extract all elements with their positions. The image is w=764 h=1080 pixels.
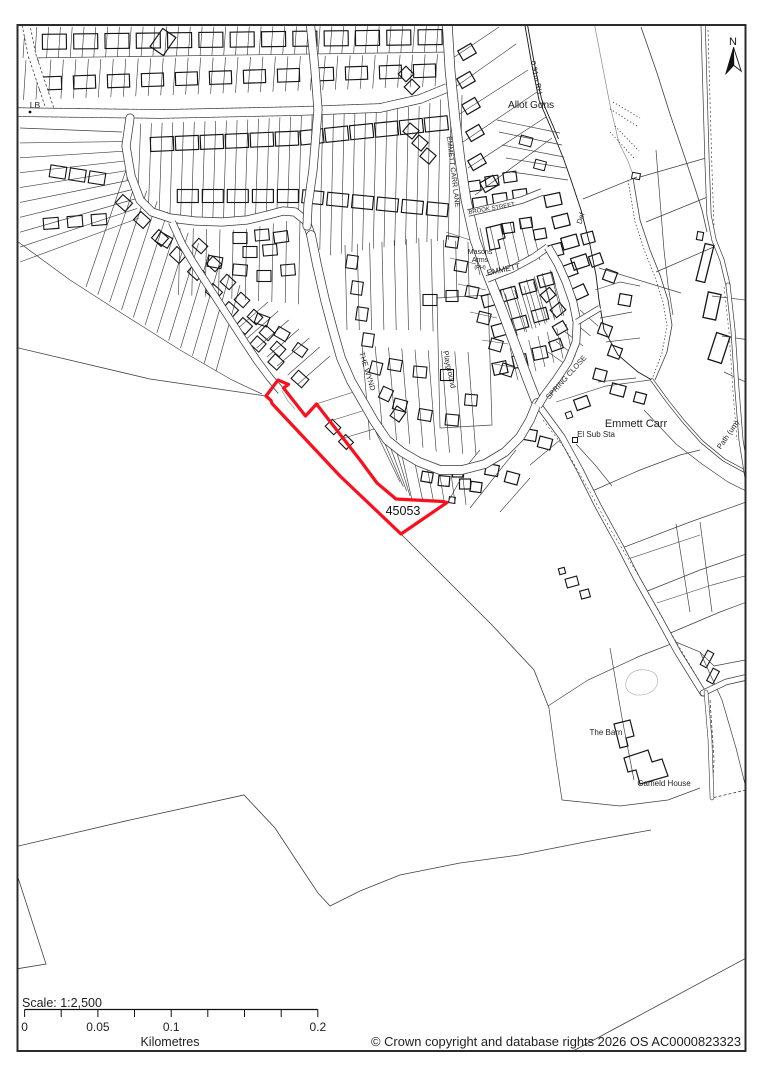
svg-text:Garfield House: Garfield House: [637, 779, 691, 788]
svg-text:Allot Gdns: Allot Gdns: [508, 100, 554, 111]
svg-text:Arms: Arms: [472, 257, 489, 264]
svg-text:Kilometres: Kilometres: [140, 1035, 199, 1049]
svg-text:N: N: [729, 36, 737, 48]
svg-text:0.2: 0.2: [309, 1020, 326, 1034]
svg-text:0.1: 0.1: [163, 1020, 180, 1034]
svg-text:Emmett Carr: Emmett Carr: [605, 418, 668, 430]
svg-text:Masons: Masons: [468, 249, 493, 256]
svg-text:LB: LB: [30, 100, 41, 110]
svg-text:45053: 45053: [386, 504, 421, 518]
svg-text:Scale: 1:2,500: Scale: 1:2,500: [22, 996, 102, 1010]
svg-text:El Sub Sta: El Sub Sta: [577, 430, 615, 439]
svg-text:0: 0: [21, 1020, 28, 1034]
svg-text:0.05: 0.05: [86, 1020, 110, 1034]
svg-text:The Barn: The Barn: [590, 728, 623, 737]
svg-text:© Crown copyright and database: © Crown copyright and database rights 20…: [371, 1034, 741, 1049]
svg-text:(PH): (PH): [474, 265, 485, 271]
